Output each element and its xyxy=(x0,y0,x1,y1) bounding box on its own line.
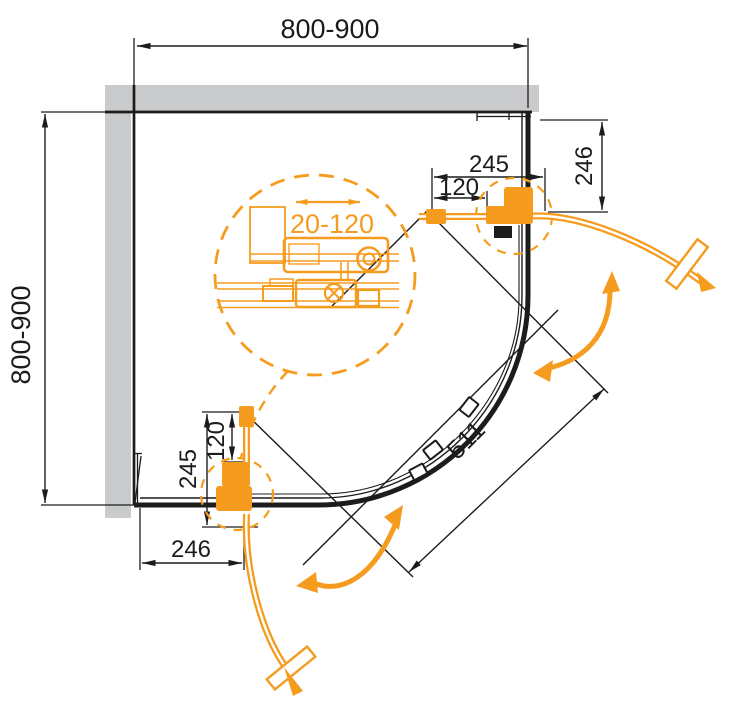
dim-diagonal-opening: 511 xyxy=(409,389,604,572)
dim-label-tr-handle: 120 xyxy=(439,174,479,201)
pivot-block xyxy=(504,187,533,224)
door-handle-inner xyxy=(239,406,254,427)
dim-label-bl-wall: 246 xyxy=(171,536,211,563)
swing-arrow-top-right xyxy=(533,271,620,382)
door-edge-construction-lines xyxy=(244,211,608,577)
pivot-block xyxy=(216,486,252,511)
dim-label-bl-hinge: 245 xyxy=(175,449,202,489)
dim-label-left-height: 800-900 xyxy=(6,285,36,384)
wall-top xyxy=(105,85,539,112)
door-closed-glass-line xyxy=(250,225,519,494)
swing-arrowhead-down xyxy=(296,572,318,593)
wall-left xyxy=(105,85,131,518)
dim-label-top-width: 800-900 xyxy=(280,14,379,44)
technical-drawing-canvas: 800-900 800-900 511 245 120 xyxy=(0,0,735,720)
swing-arrowhead-up xyxy=(602,271,620,294)
detail-mechanism: 20-120 xyxy=(217,202,399,308)
dim-label-bl-handle: 120 xyxy=(203,421,230,461)
dim-label-tr-wall: 246 xyxy=(571,146,598,186)
door-handle-inner xyxy=(426,209,446,224)
shower-enclosure-plan: 800-900 800-900 511 245 120 xyxy=(0,0,735,720)
detail-circle xyxy=(215,175,415,375)
pivot-arm xyxy=(486,206,508,224)
door-edge-tip xyxy=(697,272,716,292)
roller-wheel-icon xyxy=(358,248,381,271)
door-open-outward-curve xyxy=(246,514,290,673)
hinge-plate xyxy=(494,226,512,238)
swing-arrowhead-down xyxy=(533,360,553,382)
dim-label-adjust-range: 20-120 xyxy=(290,209,374,239)
pivot-arm xyxy=(222,462,250,486)
